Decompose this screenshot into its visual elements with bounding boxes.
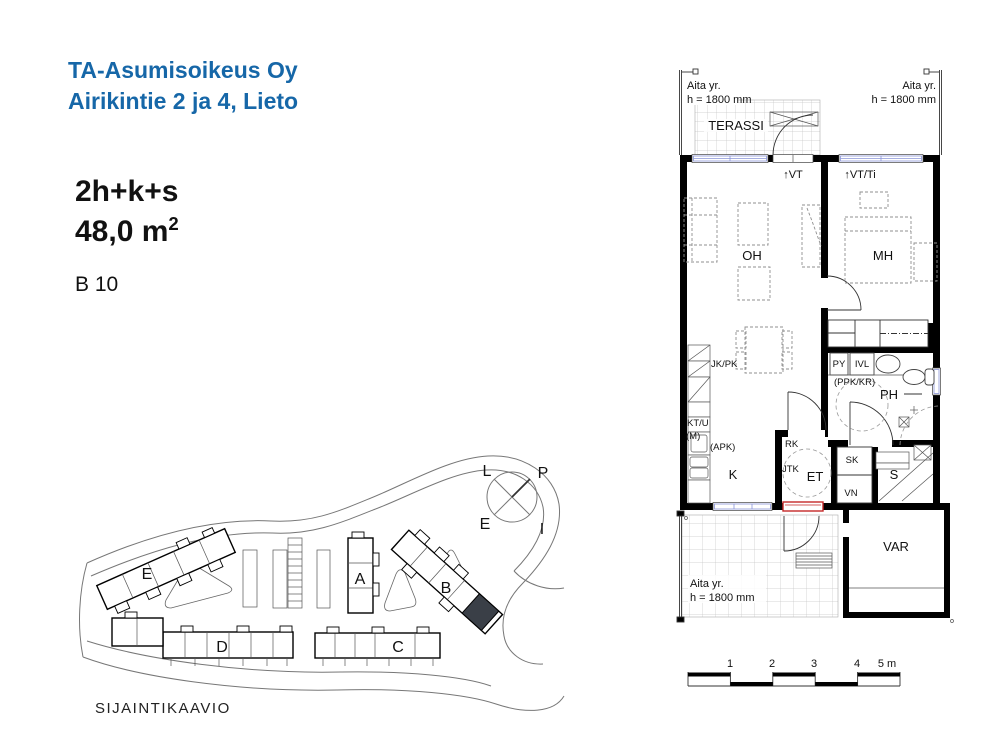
fence-note-bottom-2: h = 1800 mm (690, 592, 755, 604)
area-exponent: 2 (168, 213, 178, 234)
building-e (94, 522, 239, 616)
washer-dryer-label: (PPK/KR) (834, 377, 875, 388)
stove-label: KT/U (687, 418, 709, 429)
ventilation-label: IVL (855, 359, 869, 370)
compass-north-needle (512, 479, 530, 497)
room-label-bedroom: MH (873, 248, 893, 263)
document-header: TA-Asumisoikeus Oy Airikintie 2 ja 4, Li… (68, 55, 298, 117)
fridge-label: JK/PK (711, 359, 738, 370)
siteplan-drawing: E A B (75, 445, 570, 730)
laundry-label: PY (833, 359, 846, 370)
vt-ti-label: ↑VT/Ti (844, 169, 875, 181)
room-label-bathroom: PH (880, 387, 898, 402)
doormat (796, 553, 832, 568)
fence-note-topright-1: Aita yr. (902, 80, 936, 92)
room-label-storage: VAR (883, 539, 909, 554)
building-label-c: C (392, 639, 404, 656)
company-name: TA-Asumisoikeus Oy (68, 55, 298, 86)
scale-tick-1: 1 (727, 658, 733, 670)
floorplan-page: TA-Asumisoikeus Oy Airikintie 2 ja 4, Li… (0, 0, 1000, 750)
apartment-info: 2h+k+s 48,0 m2 B 10 (75, 172, 179, 297)
toilet (903, 370, 925, 385)
compass-north: P (538, 465, 549, 482)
apartment-layout: 2h+k+s (75, 172, 179, 212)
scale-tick-4: 4 (854, 658, 860, 670)
apartment-area: 48,0 m2 (75, 212, 179, 252)
kitchen-window (713, 503, 772, 511)
room-label-sauna: S (890, 467, 899, 482)
compass-east: I (540, 521, 544, 538)
building-label-e: E (142, 566, 153, 583)
terrace-door (773, 155, 813, 163)
address: Airikintie 2 ja 4, Lieto (68, 86, 298, 117)
dishwasher-label: (APK) (710, 442, 735, 453)
compass-south: E (480, 516, 491, 533)
jtk-label: JTK (782, 464, 800, 475)
fence-note-topright-2: h = 1800 mm (871, 94, 936, 106)
building-c (315, 627, 440, 666)
scale-bar: 1 2 3 4 5 m (688, 658, 900, 686)
scale-tick-2: 2 (769, 658, 775, 670)
compass-west: L (483, 463, 492, 480)
building-d (112, 612, 293, 666)
sauna-fixtures (876, 445, 933, 501)
building-label-b: B (441, 580, 452, 597)
scale-tick-5: 5 m (878, 658, 896, 670)
room-label-entry: ET (807, 469, 824, 484)
room-label-living: OH (742, 248, 762, 263)
fence-note-topleft-2: h = 1800 mm (687, 94, 752, 106)
building-label-d: D (216, 639, 228, 656)
vn-label: VN (844, 488, 857, 499)
microwave-label: (M) (686, 431, 700, 442)
apartment-unit-id: B 10 (75, 273, 179, 297)
living-room-window (692, 155, 768, 163)
room-label-kitchen: K (729, 467, 738, 482)
wardrobes (828, 320, 928, 347)
fence-note-bottom-1: Aita yr. (690, 578, 724, 590)
scale-tick-3: 3 (811, 658, 817, 670)
vt-label: ↑VT (783, 169, 803, 181)
cleaning-closet-label: SK (846, 455, 859, 466)
entry-door (783, 502, 823, 511)
building-label-a: A (355, 571, 366, 588)
fence-note-topleft-1: Aita yr. (687, 80, 721, 92)
siteplan-caption: SIJAINTIKAAVIO (95, 700, 231, 717)
bedroom-window (839, 155, 923, 163)
washbasin (876, 355, 900, 373)
parking-structures (243, 538, 330, 608)
floorplan-drawing: Aita yr. h = 1800 mm Aita yr. h = 1800 m… (650, 55, 980, 700)
patio-area (682, 515, 954, 623)
rk-label: RK (785, 439, 799, 450)
terrace-label: TERASSI (708, 118, 764, 133)
